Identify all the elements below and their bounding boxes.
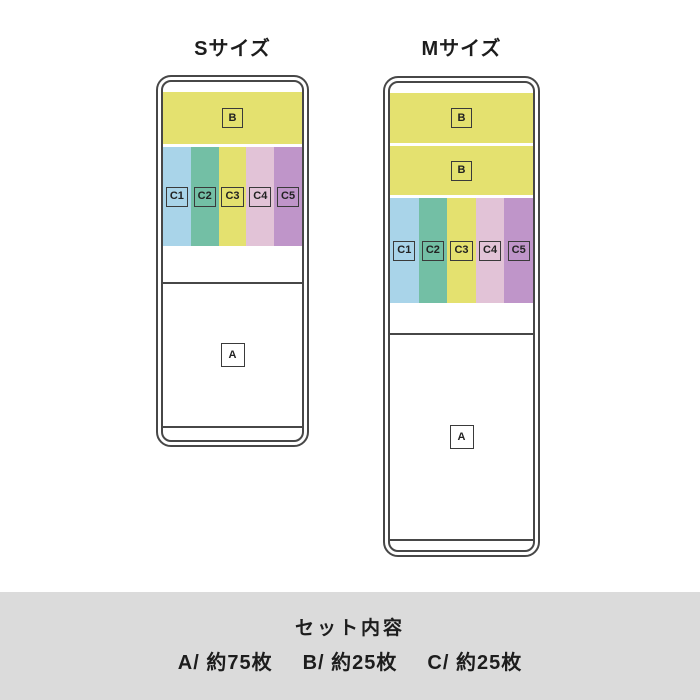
- c2-tag: C2: [422, 241, 444, 261]
- b-paper-section: B: [390, 146, 533, 195]
- c5-column: C5: [504, 198, 533, 303]
- c4-column: C4: [246, 147, 274, 246]
- c5-column: C5: [274, 147, 302, 246]
- c1-tag: C1: [166, 187, 188, 207]
- size-s-title: Sサイズ: [156, 32, 309, 61]
- c2-column: C2: [419, 198, 448, 303]
- c3-tag: C3: [221, 187, 243, 207]
- c3-column: C3: [447, 198, 476, 303]
- c1-column: C1: [390, 198, 419, 303]
- b-tag: B: [222, 108, 243, 128]
- c-paper-sections: C1 C2 C3 C4 C5: [390, 198, 533, 303]
- c3-tag: C3: [450, 241, 472, 261]
- count-c: C/ 約25枚: [427, 646, 522, 675]
- a-paper-section: A: [390, 335, 533, 539]
- c4-tag: C4: [479, 241, 501, 261]
- c4-tag: C4: [249, 187, 271, 207]
- c5-tag: C5: [277, 187, 299, 207]
- c3-column: C3: [219, 147, 247, 246]
- c5-tag: C5: [508, 241, 530, 261]
- c2-tag: C2: [194, 187, 216, 207]
- count-a: A/ 約75枚: [178, 646, 273, 675]
- set-contents-heading: セット内容: [295, 613, 405, 640]
- set-contents-footer: セット内容 A/ 約75枚 B/ 約25枚 C/ 約25枚: [0, 592, 700, 700]
- c-paper-sections: C1 C2 C3 C4 C5: [163, 147, 302, 246]
- set-contents-details: A/ 約75枚 B/ 約25枚 C/ 約25枚: [178, 646, 522, 675]
- b-paper-section: B: [163, 92, 302, 144]
- package-s-inner: B C1 C2 C3 C4 C5: [161, 80, 304, 442]
- a-tag: A: [450, 425, 474, 449]
- package-m-inner: B B C1 C2 C3 C4 C5: [388, 81, 535, 552]
- c2-column: C2: [191, 147, 219, 246]
- package-s: B C1 C2 C3 C4 C5: [156, 75, 309, 447]
- a-tag: A: [221, 343, 245, 367]
- c1-column: C1: [163, 147, 191, 246]
- b-tag: B: [451, 161, 472, 181]
- count-b: B/ 約25枚: [303, 646, 398, 675]
- c1-tag: C1: [393, 241, 415, 261]
- b-tag: B: [451, 108, 472, 128]
- c4-column: C4: [476, 198, 505, 303]
- b-paper-section: B: [390, 93, 533, 143]
- package-m: B B C1 C2 C3 C4 C5: [383, 76, 540, 557]
- product-set-diagram: Sサイズ Mサイズ B C1 C2 C3 C4: [0, 0, 700, 700]
- size-m-title: Mサイズ: [383, 32, 540, 61]
- a-paper-section: A: [163, 284, 302, 426]
